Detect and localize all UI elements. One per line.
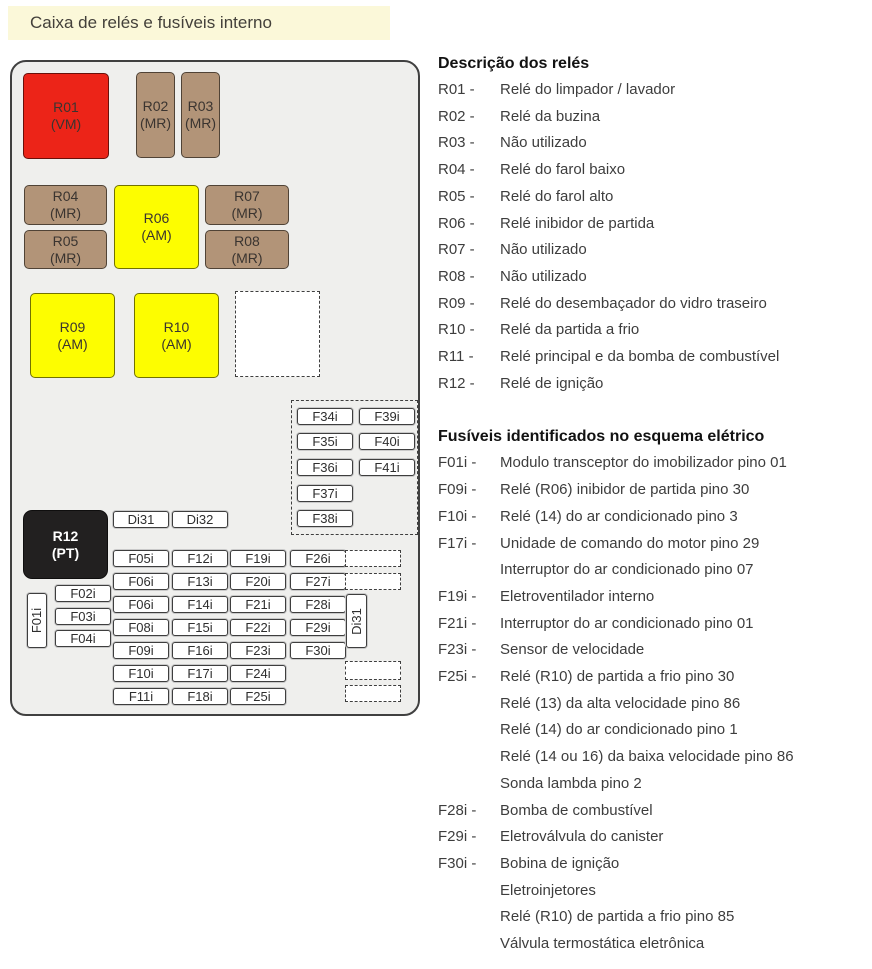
relay-R06: R06 (AM) [114, 185, 199, 269]
fuse-F19i: F19i [230, 550, 286, 567]
relay-list-label: R01 - [438, 77, 500, 104]
relay-list-desc: Relé da partida a frio [500, 317, 872, 344]
relay-R04: R04 (MR) [24, 185, 107, 225]
fuse-F27i: F27i [290, 573, 346, 590]
fuse-F41i: F41i [359, 459, 415, 476]
fuse-F16i: F16i [172, 642, 228, 659]
relay-R02: R02 (MR) [136, 72, 175, 158]
fuse-list-desc: Relé (R10) de partida a frio pino 30 [500, 664, 872, 691]
relay-list-desc: Relé inibidor de partida [500, 211, 872, 238]
diode-label: Di31 [349, 608, 364, 635]
fuse-F39i: F39i [359, 408, 415, 425]
fuse-list-desc: Bomba de combustível [500, 798, 872, 825]
fuse-F23i: F23i [230, 642, 286, 659]
relay-id: R12 [53, 528, 79, 545]
fuse-label: F01i [30, 608, 45, 633]
fuse-list-desc: Relé (14 ou 16) da baixa velocidade pino… [500, 744, 872, 771]
relay-list-item: R03 - Não utilizado [438, 130, 872, 157]
manual-page: { "page": { "title": "Caixa de relés e f… [0, 0, 872, 969]
relay-id: R09 [60, 319, 86, 336]
fuse-F29i: F29i [290, 619, 346, 636]
fuse-list-label: F29i - [438, 824, 500, 851]
fuse-list-item: F21i - Interruptor do ar condicionado pi… [438, 611, 872, 638]
relay-list-item: R10 - Relé da partida a frio [438, 317, 872, 344]
relay-id: R10 [164, 319, 190, 336]
relay-R03: R03 (MR) [181, 72, 220, 158]
relay-list-label: R12 - [438, 371, 500, 398]
relay-R01: R01 (VM) [23, 73, 109, 159]
relay-section-heading: Descrição dos relés [438, 50, 872, 77]
fuse-list-desc: Relé (14) do ar condicionado pino 3 [500, 504, 872, 531]
relay-id: R07 [234, 188, 260, 205]
fuse-list-desc: Sonda lambda pino 2 [500, 771, 872, 798]
fuse-list-desc: Relé (R10) de partida a frio pino 85 [500, 904, 872, 931]
relay-id: R04 [53, 188, 79, 205]
relay-code: (MR) [185, 115, 216, 132]
fuse-list-desc: Relé (13) da alta velocidade pino 86 [500, 691, 872, 718]
relay-code: (MR) [231, 205, 262, 222]
fuse-F06i: F06i [113, 573, 169, 590]
relay-R12: R12 (PT) [23, 510, 108, 579]
fuse-F08i: F08i [113, 619, 169, 636]
relay-list-item: R09 - Relé do desembaçador do vidro tras… [438, 291, 872, 318]
relay-list-desc: Relé do limpador / lavador [500, 77, 872, 104]
relay-id: R08 [234, 233, 260, 250]
relay-list-label: R11 - [438, 344, 500, 371]
fuse-F30i: F30i [290, 642, 346, 659]
relay-list-label: R07 - [438, 237, 500, 264]
relay-code: (MR) [231, 250, 262, 267]
relay-id: R02 [143, 98, 169, 115]
relay-list-item: R04 - Relé do farol baixo [438, 157, 872, 184]
relay-list-item: R12 - Relé de ignição [438, 371, 872, 398]
fuse-F05i: F05i [113, 550, 169, 567]
fuse-F36i: F36i [297, 459, 353, 476]
fuse-list-desc: Unidade de comando do motor pino 29 [500, 531, 872, 558]
fuse-list-item: F10i - Relé (14) do ar condicionado pino… [438, 504, 872, 531]
fuse-F12i: F12i [172, 550, 228, 567]
fuse-F13i: F13i [172, 573, 228, 590]
fuse-list-item: F28i - Bomba de combustível [438, 798, 872, 825]
fuse-F11i: F11i [113, 688, 169, 705]
fuse-F35i: F35i [297, 433, 353, 450]
fuse-F01i: F01i [27, 593, 47, 648]
fuse-list-item: F30i - Bobina de ignição Eletroinjetores… [438, 851, 872, 958]
fuse-F28i: F28i [290, 596, 346, 613]
fuse-list-desc: Bobina de ignição [500, 851, 872, 878]
relay-id: R03 [188, 98, 214, 115]
relay-list-desc: Não utilizado [500, 130, 872, 157]
relay-code: (MR) [140, 115, 171, 132]
relay-list-item: R02 - Relé da buzina [438, 104, 872, 131]
empty-fuse-slot [345, 685, 401, 702]
relay-list-desc: Relé do desembaçador do vidro traseiro [500, 291, 872, 318]
fuse-list-desc: Relé (R06) inibidor de partida pino 30 [500, 477, 872, 504]
fuse-list-item: F01i - Modulo transceptor do imobilizado… [438, 450, 872, 477]
fuse-F21i: F21i [230, 596, 286, 613]
fuse-list-item: F09i - Relé (R06) inibidor de partida pi… [438, 477, 872, 504]
fuse-list-desc: Eletroventilador interno [500, 584, 872, 611]
fuse-F09i: F09i [113, 642, 169, 659]
fuse-F15i: F15i [172, 619, 228, 636]
relay-list-label: R06 - [438, 211, 500, 238]
fuse-list-label: F10i - [438, 504, 500, 531]
relay-list-desc: Relé da buzina [500, 104, 872, 131]
relay-code: (MR) [50, 205, 81, 222]
fuse-F26i: F26i [290, 550, 346, 567]
fuse-F37i: F37i [297, 485, 353, 502]
fuse-list-label: F23i - [438, 637, 500, 664]
fuse-F22i: F22i [230, 619, 286, 636]
relay-code: (VM) [51, 116, 81, 133]
fuse-F14i: F14i [172, 596, 228, 613]
empty-fuse-slot [345, 573, 401, 590]
fuse-box-diagram: R01 (VM) R02 (MR) R03 (MR) R04 (MR) R05 … [10, 60, 420, 716]
fuse-list-item: F25i - Relé (R10) de partida a frio pino… [438, 664, 872, 798]
diode-Di32: Di32 [172, 511, 228, 528]
fuse-F25i: F25i [230, 688, 286, 705]
fuse-list-desc: Válvula termostática eletrônica [500, 931, 872, 958]
fuse-list-label: F01i - [438, 450, 500, 477]
relay-list-item: R06 - Relé inibidor de partida [438, 211, 872, 238]
relay-id: R01 [53, 99, 79, 116]
relay-code: (PT) [52, 545, 79, 562]
fuse-F24i: F24i [230, 665, 286, 682]
fuse-list-label: F30i - [438, 851, 500, 958]
relay-list-desc: Relé principal e da bomba de combustível [500, 344, 872, 371]
fuse-list-item: F19i - Eletroventilador interno [438, 584, 872, 611]
relay-R09: R09 (AM) [30, 293, 115, 378]
fuse-F34i: F34i [297, 408, 353, 425]
relay-list-label: R04 - [438, 157, 500, 184]
relay-R10: R10 (AM) [134, 293, 219, 378]
fuse-list-label: F21i - [438, 611, 500, 638]
fuse-F17i: F17i [172, 665, 228, 682]
relay-code: (AM) [161, 336, 191, 353]
relay-code: (AM) [57, 336, 87, 353]
fuse-F10i: F10i [113, 665, 169, 682]
relay-list-desc: Relé do farol baixo [500, 157, 872, 184]
fuse-list-item: F17i - Unidade de comando do motor pino … [438, 531, 872, 584]
fuse-list-label: F19i - [438, 584, 500, 611]
relay-list-desc: Relé de ignição [500, 371, 872, 398]
legend-panel: Descrição dos relés R01 - Relé do limpad… [438, 50, 872, 958]
fuse-list-item: F23i - Sensor de velocidade [438, 637, 872, 664]
relay-list-desc: Relé do farol alto [500, 184, 872, 211]
relay-list-label: R05 - [438, 184, 500, 211]
relay-list-item: R08 - Não utilizado [438, 264, 872, 291]
fuse-F20i: F20i [230, 573, 286, 590]
empty-fuse-slot [345, 661, 401, 680]
empty-relay-slot [235, 291, 320, 377]
fuse-list-item: F29i - Eletroválvula do canister [438, 824, 872, 851]
relay-list-label: R09 - [438, 291, 500, 318]
relay-list-item: R07 - Não utilizado [438, 237, 872, 264]
relay-list-item: R01 - Relé do limpador / lavador [438, 77, 872, 104]
fuse-section-heading: Fusíveis identificados no esquema elétri… [438, 423, 872, 450]
fuse-list-desc: Modulo transceptor do imobilizador pino … [500, 450, 872, 477]
fuse-F06i-2: F06i [113, 596, 169, 613]
fuse-F18i: F18i [172, 688, 228, 705]
relay-list-item: R11 - Relé principal e da bomba de combu… [438, 344, 872, 371]
empty-fuse-slot [345, 550, 401, 567]
relay-list-desc: Não utilizado [500, 237, 872, 264]
fuse-F02i: F02i [55, 585, 111, 602]
page-title: Caixa de relés e fusíveis interno [8, 6, 390, 40]
relay-list-label: R08 - [438, 264, 500, 291]
fuse-list-label: F17i - [438, 531, 500, 584]
fuse-list-desc: Interruptor do ar condicionado pino 07 [500, 557, 872, 584]
fuse-list-desc: Interruptor do ar condicionado pino 01 [500, 611, 872, 638]
fuse-F03i: F03i [55, 608, 111, 625]
relay-R05: R05 (MR) [24, 230, 107, 269]
relay-list-label: R02 - [438, 104, 500, 131]
fuse-list-desc: Eletroválvula do canister [500, 824, 872, 851]
fuse-list-desc: Relé (14) do ar condicionado pino 1 [500, 717, 872, 744]
fuse-list-desc: Sensor de velocidade [500, 637, 872, 664]
relay-list-item: R05 - Relé do farol alto [438, 184, 872, 211]
fuse-F04i: F04i [55, 630, 111, 647]
fuse-F38i: F38i [297, 510, 353, 527]
diode-Di31-vertical: Di31 [346, 594, 367, 648]
fuse-list-label: F25i - [438, 664, 500, 798]
relay-code: (MR) [50, 250, 81, 267]
relay-list-label: R03 - [438, 130, 500, 157]
fuse-F40i: F40i [359, 433, 415, 450]
fuse-list-label: F28i - [438, 798, 500, 825]
relay-R08: R08 (MR) [205, 230, 289, 269]
fuse-list-desc: Eletroinjetores [500, 878, 872, 905]
diode-Di31: Di31 [113, 511, 169, 528]
relay-id: R06 [144, 210, 170, 227]
relay-list-label: R10 - [438, 317, 500, 344]
relay-R07: R07 (MR) [205, 185, 289, 225]
relay-list-desc: Não utilizado [500, 264, 872, 291]
fuse-list-label: F09i - [438, 477, 500, 504]
relay-id: R05 [53, 233, 79, 250]
relay-code: (AM) [141, 227, 171, 244]
